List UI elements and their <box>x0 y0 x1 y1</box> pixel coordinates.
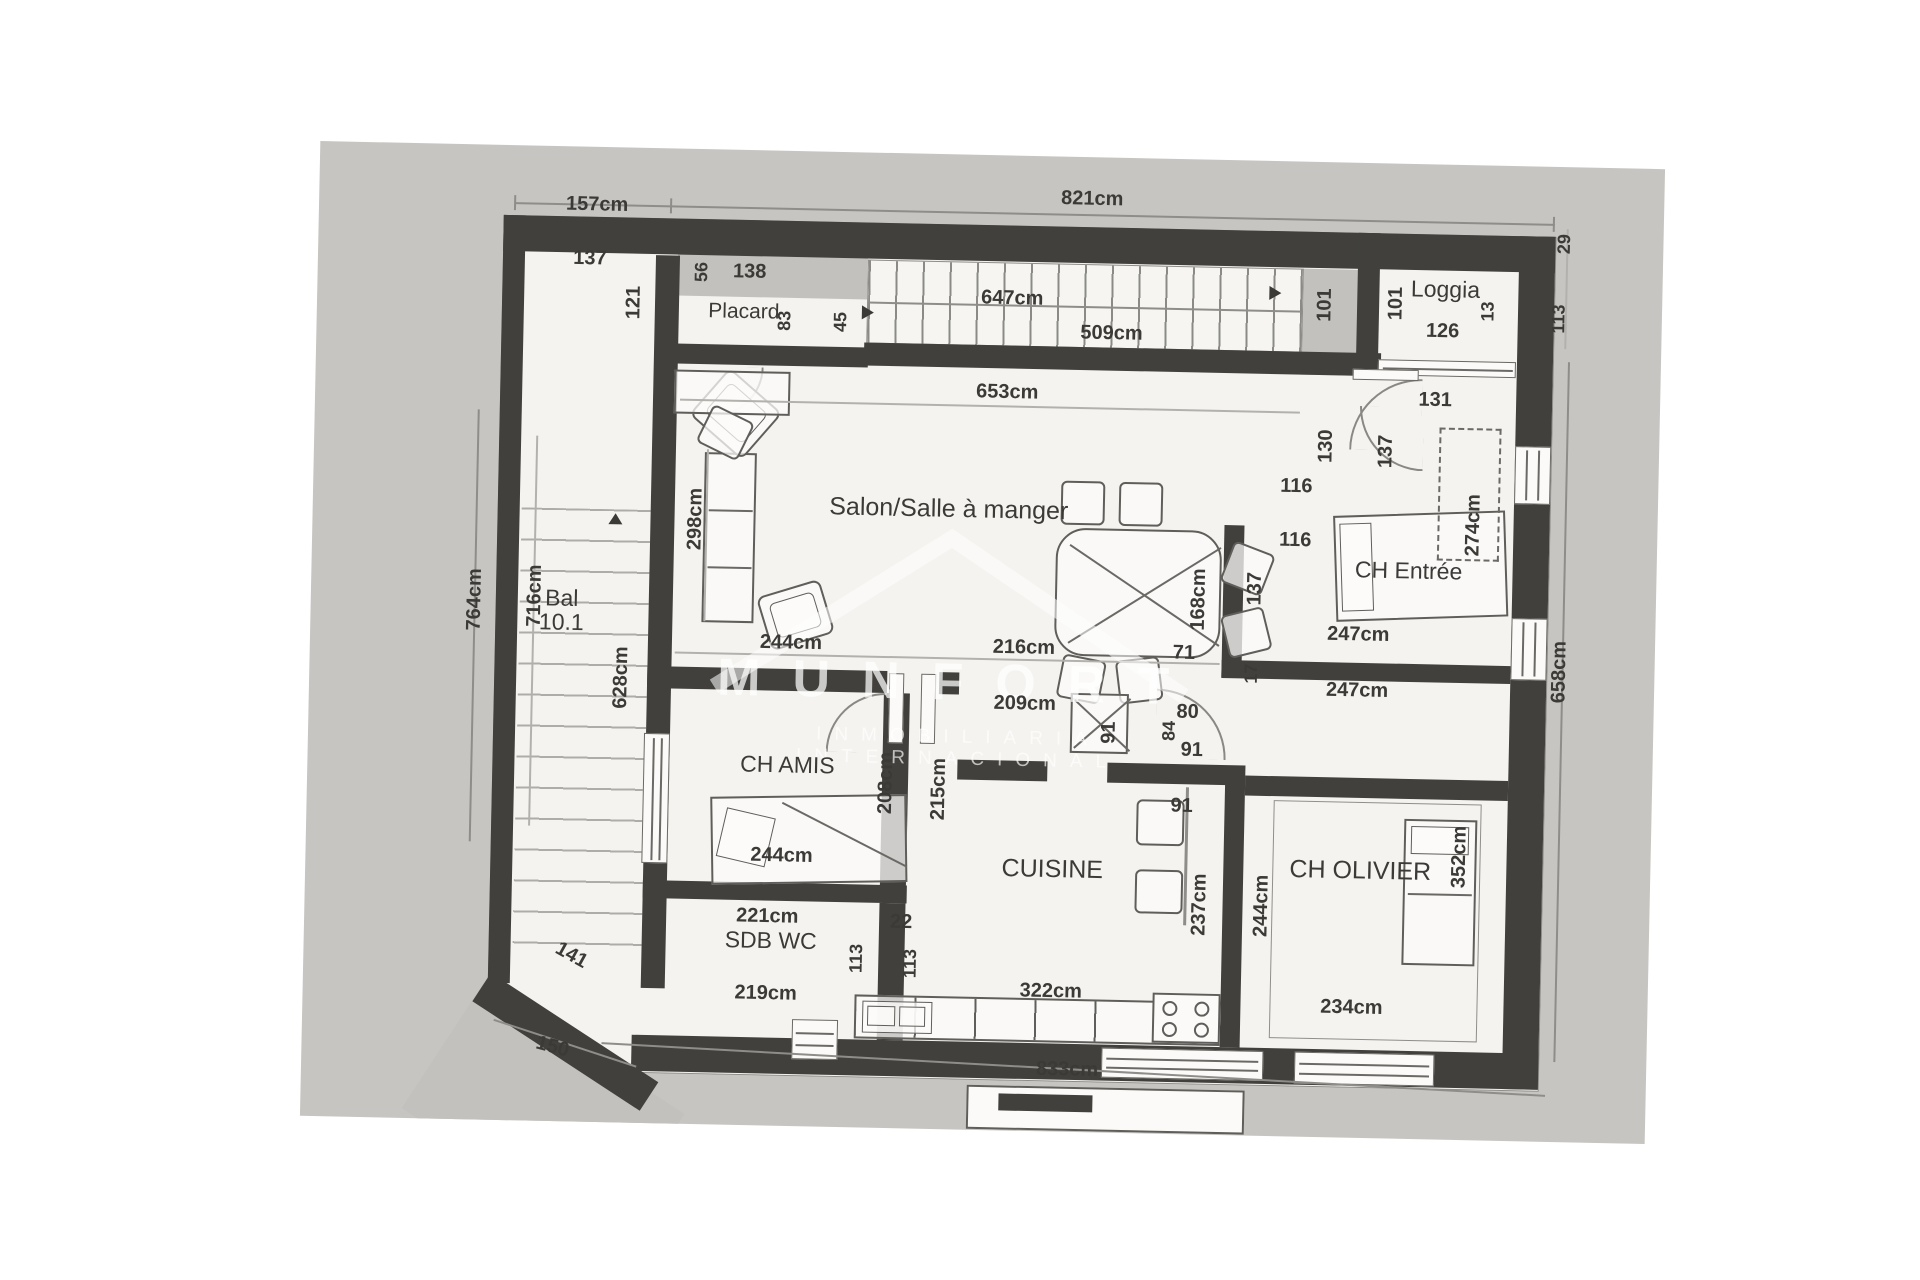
dim-label: 208cm <box>874 752 898 815</box>
dim-label: 764cm <box>463 568 487 631</box>
dim-label: 274cm <box>1461 494 1485 557</box>
dim-label: 113 <box>846 944 868 973</box>
dim-label: 138 <box>733 260 767 284</box>
wall-placard <box>676 344 868 368</box>
dim-label: 322cm <box>1019 979 1082 1003</box>
dim-line-right <box>1553 362 1570 1062</box>
stair-direction-arrow-icon <box>862 305 874 319</box>
dim-label: 628cm <box>609 646 633 709</box>
dim-label: 244cm <box>760 631 823 655</box>
wall-loggia-left <box>1356 233 1381 376</box>
dim-label: 116 <box>1280 475 1313 499</box>
dim-label: 17 <box>1241 663 1262 683</box>
dim-label: 113 <box>899 949 921 978</box>
dim-label: 298cm <box>683 488 707 551</box>
dim-label: 216cm <box>993 636 1056 660</box>
dim-label: 833cm <box>1036 1058 1099 1082</box>
dim-label: 45 <box>830 312 851 332</box>
dim-label: 83 <box>774 311 795 331</box>
dim-label: 101 <box>1313 288 1337 322</box>
kitchen-sink <box>862 1001 933 1034</box>
dim-label: 126 <box>1426 320 1460 344</box>
dim-label: 221cm <box>736 904 799 928</box>
partial-plan-fragment <box>966 1085 1245 1135</box>
dim-label: 91 <box>1170 794 1193 817</box>
dim-label: 121 <box>622 286 646 320</box>
dim-label: 116 <box>1279 529 1312 553</box>
entry-door-leaf <box>1353 369 1419 381</box>
stove <box>1152 993 1221 1044</box>
dim-label: 131 <box>1418 389 1452 413</box>
bar-stool <box>1134 869 1183 914</box>
dim-label: 234cm <box>1320 996 1383 1020</box>
dim-label: 215cm <box>927 758 951 821</box>
dim-label: 13 <box>1477 301 1498 321</box>
dim-label: 22 <box>890 911 913 934</box>
dim-label: 247cm <box>1326 679 1389 703</box>
desk <box>674 369 791 415</box>
dim-label: 101 <box>1384 287 1408 321</box>
dim-label: 113 <box>1548 304 1570 333</box>
dining-chair <box>1118 482 1163 527</box>
dim-label: 658cm <box>1547 641 1571 704</box>
balcony-window <box>641 733 670 864</box>
dim-tick <box>514 195 516 210</box>
watermark-title: MUNFORT <box>709 647 1210 717</box>
dim-tick <box>670 198 672 213</box>
dim-label: 209cm <box>993 692 1056 716</box>
dim-label: 84 <box>1158 721 1179 741</box>
dim-label: 29 <box>1554 234 1575 254</box>
dim-label: 244cm <box>750 844 813 868</box>
dim-label: 352cm <box>1447 826 1471 889</box>
room-label: CUISINE <box>1001 854 1103 885</box>
dim-label: 244cm <box>1249 875 1273 938</box>
dim-label: 653cm <box>976 380 1039 404</box>
dim-label: 157cm <box>566 193 629 217</box>
room-label: Loggia <box>1411 275 1481 303</box>
dim-label: 56 <box>691 262 712 282</box>
dim-label: 91 <box>1097 721 1120 744</box>
dim-label: 91 <box>1180 739 1203 762</box>
room-label: CH OLIVIER <box>1289 855 1431 887</box>
floor-plan-page: MUNFORT INMOBILIARIA INTERNACIONAL 157cm… <box>0 0 1920 1280</box>
balcony-stair-arrow-icon <box>608 513 622 524</box>
dim-label: 821cm <box>1061 187 1124 211</box>
dim-label: 168cm <box>1187 568 1211 631</box>
dim-label: 137 <box>1243 572 1267 606</box>
dim-label: 509cm <box>1080 321 1143 345</box>
right-wall-window <box>1510 618 1547 681</box>
room-label: CH Entrée <box>1355 556 1463 585</box>
room-label: Placard <box>708 299 780 324</box>
dim-label: 130 <box>1314 429 1338 463</box>
dim-label: 247cm <box>1327 623 1390 647</box>
room-label: Salon/Salle à manger <box>829 492 1069 526</box>
dim-tick <box>1553 217 1555 232</box>
dim-label: 647cm <box>981 286 1044 310</box>
dimension-labels: 157cm821cm13712156138647cm45509cm101101L… <box>320 141 1665 169</box>
scanned-floor-plan: MUNFORT INMOBILIARIA INTERNACIONAL 157cm… <box>300 141 1665 1144</box>
dim-label: 137 <box>573 247 607 271</box>
right-wall-window <box>1514 446 1551 505</box>
dim-label: 237cm <box>1187 873 1211 936</box>
stair-direction-arrow-icon <box>1269 286 1281 300</box>
dim-label: 71 <box>1172 641 1195 664</box>
dim-label: 219cm <box>734 981 797 1005</box>
room-label: SDB WC <box>724 926 817 955</box>
dim-label: 137 <box>1374 434 1398 468</box>
room-label: 10.1 <box>539 608 584 636</box>
room-label: CH AMIS <box>740 750 835 779</box>
